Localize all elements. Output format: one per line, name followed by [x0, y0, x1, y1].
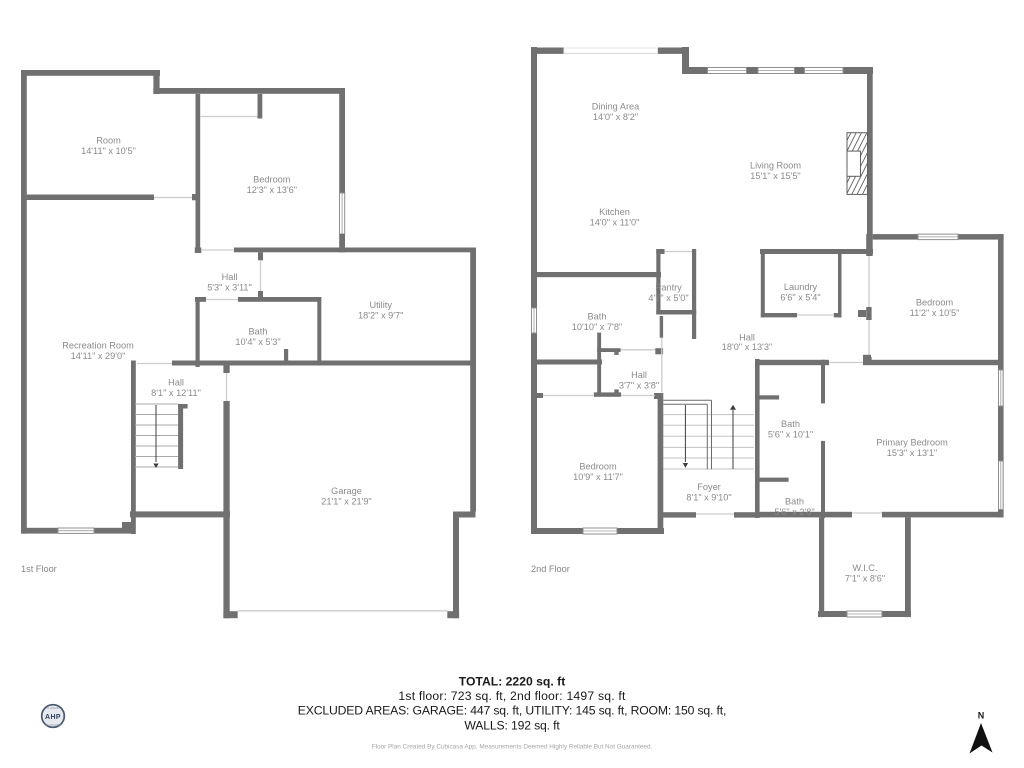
svg-text:3'7" x 3'8": 3'7" x 3'8" — [619, 381, 659, 391]
svg-text:18'2" x 9'7": 18'2" x 9'7" — [358, 311, 403, 321]
svg-text:Recreation Room: Recreation Room — [62, 341, 134, 351]
svg-text:2nd Floor: 2nd Floor — [531, 564, 570, 574]
svg-text:A HOME: A HOME — [47, 706, 59, 710]
svg-text:Floor Plan Created By Cubicasa: Floor Plan Created By Cubicasa App. Meas… — [372, 744, 653, 751]
svg-text:Room: Room — [96, 136, 121, 146]
svg-text:15'3" x 13'1": 15'3" x 13'1" — [887, 448, 937, 458]
svg-text:5'6" x 2'8": 5'6" x 2'8" — [774, 507, 814, 517]
svg-text:4'7" x 5'0": 4'7" x 5'0" — [648, 293, 688, 303]
svg-text:Garage: Garage — [331, 486, 362, 496]
svg-text:Bath: Bath — [785, 497, 804, 507]
svg-text:EXCLUDED AREAS: GARAGE: 447 sq: EXCLUDED AREAS: GARAGE: 447 sq. ft, UTIL… — [298, 704, 727, 718]
svg-text:Pantry: Pantry — [655, 283, 682, 293]
svg-text:11'2" x 10'5": 11'2" x 10'5" — [910, 308, 960, 318]
svg-text:5'6" x 10'1": 5'6" x 10'1" — [768, 430, 813, 440]
svg-text:Utility: Utility — [369, 300, 392, 310]
svg-text:Foyer: Foyer — [697, 482, 721, 492]
svg-text:Dining Area: Dining Area — [592, 102, 640, 112]
svg-text:7'1" x 8'6": 7'1" x 8'6" — [845, 574, 885, 584]
svg-text:Laundry: Laundry — [784, 282, 818, 292]
svg-text:Bedroom: Bedroom — [916, 298, 954, 308]
svg-text:14'0" x 8'2": 14'0" x 8'2" — [593, 112, 638, 122]
svg-text:14'11" x 10'5": 14'11" x 10'5" — [81, 146, 136, 156]
svg-text:12'3" x 13'6": 12'3" x 13'6" — [247, 185, 297, 195]
svg-text:Bath: Bath — [781, 419, 800, 429]
svg-text:Bedroom: Bedroom — [253, 175, 291, 185]
svg-text:1st floor: 723 sq. ft, 2nd flo: 1st floor: 723 sq. ft, 2nd floor: 1497 s… — [398, 689, 626, 703]
svg-text:14'0" x 11'0": 14'0" x 11'0" — [590, 218, 640, 228]
svg-text:WALLS: 192 sq. ft: WALLS: 192 sq. ft — [464, 718, 560, 732]
svg-text:PLATFORM: PLATFORM — [45, 723, 62, 727]
svg-text:10'9" x 11'7": 10'9" x 11'7" — [573, 472, 623, 482]
svg-text:Kitchen: Kitchen — [599, 207, 630, 217]
svg-text:Primary Bedroom: Primary Bedroom — [876, 438, 948, 448]
svg-text:Bath: Bath — [249, 327, 268, 337]
svg-text:18'0" x 13'3": 18'0" x 13'3" — [722, 342, 772, 352]
svg-text:N: N — [978, 711, 985, 721]
svg-text:8'1" x 12'11": 8'1" x 12'11" — [151, 388, 201, 398]
svg-text:TOTAL: 2220 sq. ft: TOTAL: 2220 sq. ft — [459, 674, 566, 688]
svg-text:6'6" x 5'4": 6'6" x 5'4" — [780, 293, 820, 303]
svg-text:Living Room: Living Room — [750, 161, 801, 171]
svg-text:Hall: Hall — [222, 272, 238, 282]
svg-text:14'11" x 29'0": 14'11" x 29'0" — [71, 351, 126, 361]
svg-text:10'10" x 7'8": 10'10" x 7'8" — [572, 322, 622, 332]
svg-text:15'1" x 15'5": 15'1" x 15'5" — [750, 171, 800, 181]
svg-text:Hall: Hall — [631, 370, 647, 380]
svg-text:Bath: Bath — [588, 312, 607, 322]
svg-text:W.I.C.: W.I.C. — [852, 563, 877, 573]
svg-text:5'3" x 3'11": 5'3" x 3'11" — [207, 283, 252, 293]
svg-text:1st Floor: 1st Floor — [21, 564, 57, 574]
svg-text:AHP: AHP — [45, 714, 61, 721]
svg-text:Hall: Hall — [168, 378, 184, 388]
svg-text:10'4" x 5'3": 10'4" x 5'3" — [235, 337, 280, 347]
svg-text:Bedroom: Bedroom — [579, 462, 617, 472]
svg-text:21'1" x 21'9": 21'1" x 21'9" — [321, 497, 371, 507]
svg-text:8'1" x 9'10": 8'1" x 9'10" — [686, 493, 731, 503]
